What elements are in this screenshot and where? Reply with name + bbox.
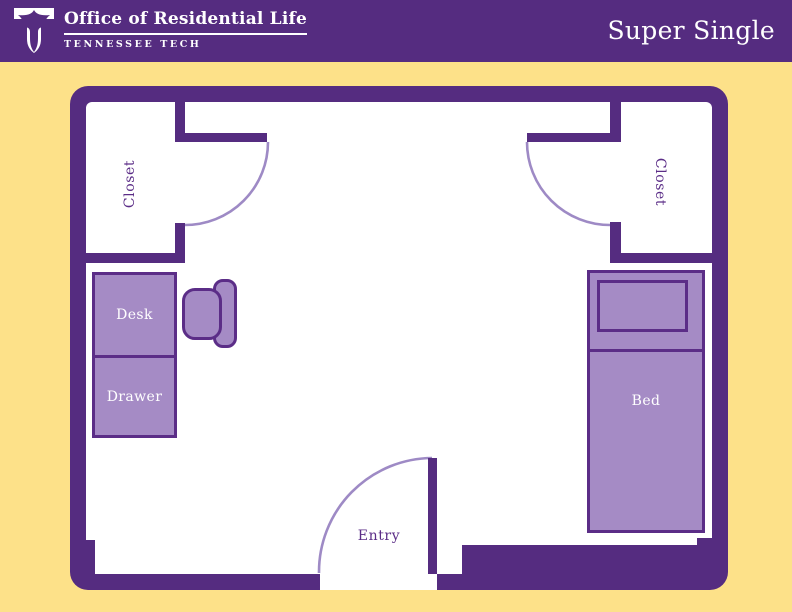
page-title: Super Single	[607, 0, 775, 62]
desk: Desk	[95, 275, 174, 355]
wall-bottom-right-ledge	[462, 545, 712, 574]
wall-bottom-right-step	[697, 538, 712, 574]
wall-bottom-left-step	[86, 540, 95, 574]
brand-tagline: TENNESSEE TECH	[64, 39, 307, 50]
wall-right-closet-top-stub	[610, 102, 621, 142]
header-bar: Office of Residential Life TENNESSEE TEC…	[0, 0, 792, 62]
bed-label: Bed	[590, 393, 702, 409]
wall-left-closet-bottom-stub	[175, 223, 185, 254]
drawer: Drawer	[95, 355, 174, 435]
page: Office of Residential Life TENNESSEE TEC…	[0, 0, 792, 612]
left-closet-door-leaf	[185, 133, 267, 142]
closet-right-label: Closet	[652, 158, 668, 206]
drawer-label: Drawer	[107, 389, 163, 405]
desk-label: Desk	[116, 307, 153, 323]
wall-right-closet-bottom	[610, 253, 712, 263]
brand-block: Office of Residential Life TENNESSEE TEC…	[64, 9, 307, 50]
floorplan: Desk Drawer Bed Closet Closet Entry	[70, 86, 728, 590]
pillow	[597, 280, 688, 332]
chair-seat	[182, 288, 222, 340]
entry-label: Entry	[358, 528, 400, 544]
wall-left-closet-bottom	[86, 253, 185, 263]
right-closet-door-leaf	[527, 133, 610, 142]
closet-left-label: Closet	[122, 160, 138, 208]
desk-unit: Desk Drawer	[92, 272, 177, 438]
entry-door-leaf	[428, 458, 437, 574]
wall-right-closet-bottom-stub	[610, 222, 621, 254]
wall-left-closet-top-stub	[175, 102, 185, 142]
brand-title: Office of Residential Life	[64, 9, 307, 35]
room-floor: Desk Drawer Bed Closet Closet Entry	[86, 102, 712, 574]
bed: Bed	[587, 270, 705, 533]
tennessee-tech-eagle-logo-icon	[14, 8, 54, 54]
entry-opening	[320, 572, 437, 590]
bed-divider	[590, 349, 702, 352]
